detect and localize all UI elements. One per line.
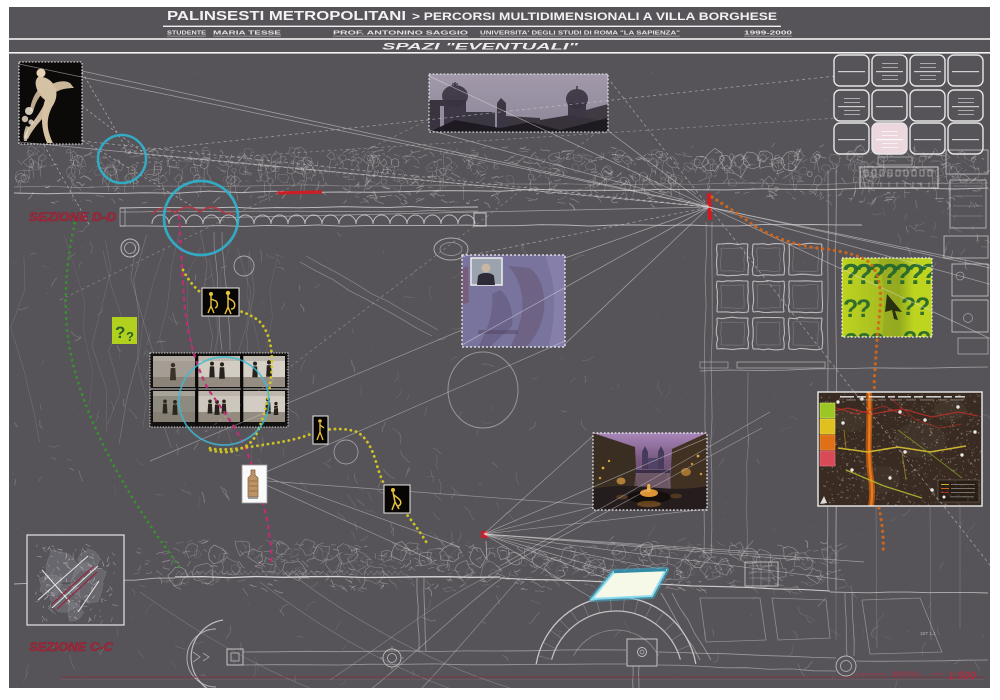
svg-text:1ET 1.1: 1ET 1.1 — [920, 631, 936, 636]
svg-text:SPAZI "EVENTUALI": SPAZI "EVENTUALI" — [382, 42, 579, 53]
svg-text:1999-2000: 1999-2000 — [744, 31, 792, 37]
svg-text:MARIA TESSE: MARIA TESSE — [213, 31, 281, 37]
svg-text:UNIVERSITA' DEGLI STUDI DI ROM: UNIVERSITA' DEGLI STUDI DI ROMA "LA SAPI… — [480, 31, 680, 37]
svg-text:?: ? — [126, 329, 134, 344]
svg-text:GRAFIA: GRAFIA — [892, 671, 920, 678]
svg-text:PROF. ANTONINO SAGGIO: PROF. ANTONINO SAGGIO — [333, 31, 469, 37]
svg-text:PALINSESTI METROPOLITANI: PALINSESTI METROPOLITANI — [167, 8, 406, 23]
svg-text:STUDENTE: STUDENTE — [167, 31, 206, 37]
svg-text:1:500: 1:500 — [948, 670, 977, 682]
svg-text:> PERCORSI MULTIDIMENSIONALI A: > PERCORSI MULTIDIMENSIONALI A VILLA BOR… — [412, 11, 777, 23]
svg-text:?: ? — [115, 323, 125, 342]
svg-text:SEZIONE C-C: SEZIONE C-C — [29, 642, 114, 654]
svg-text:SEZIONE D-D: SEZIONE D-D — [29, 212, 116, 224]
svg-text:?: ? — [856, 295, 871, 323]
svg-text:?: ? — [901, 293, 916, 321]
